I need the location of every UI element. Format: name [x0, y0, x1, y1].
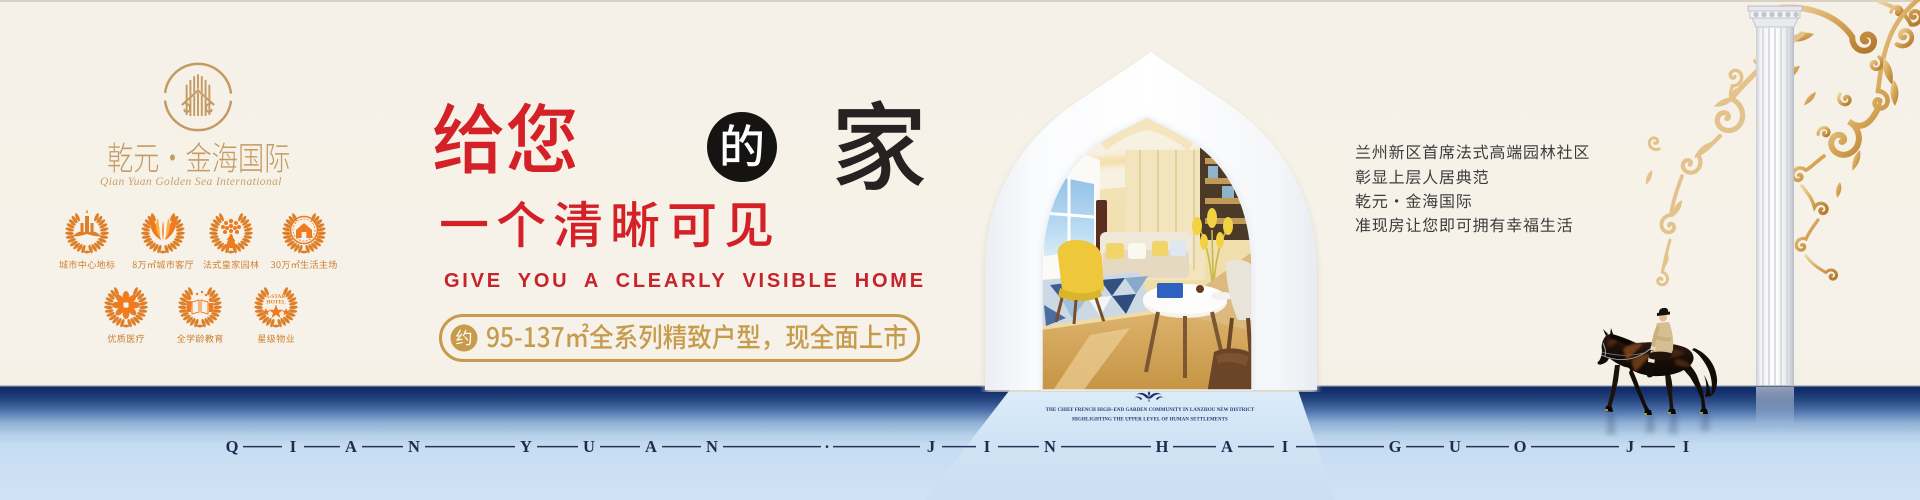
svg-text:G: G	[1389, 437, 1402, 456]
svg-text:I: I	[984, 437, 990, 456]
svg-text:Y: Y	[520, 437, 532, 456]
svg-text:Q: Q	[226, 437, 239, 456]
svg-text:THE CHIEF FRENCH HIGH–END GARD: THE CHIEF FRENCH HIGH–END GARDEN COMMUNI…	[1046, 408, 1255, 413]
svg-text:A: A	[1221, 437, 1233, 456]
svg-text:I: I	[1282, 437, 1288, 456]
svg-text:O: O	[1514, 437, 1527, 456]
svg-text:HOTEL: HOTEL	[266, 300, 286, 306]
svg-text:·: ·	[824, 437, 830, 456]
svg-text:N: N	[408, 437, 420, 456]
svg-text:A: A	[345, 437, 357, 456]
svg-text:U: U	[583, 437, 595, 456]
svg-text:I: I	[290, 437, 296, 456]
svg-text:U: U	[1449, 437, 1461, 456]
svg-text:HIGHLIGHTING THE UPPER LEVEL O: HIGHLIGHTING THE UPPER LEVEL OF HUMAN SE…	[1072, 418, 1228, 423]
svg-text:N: N	[1044, 437, 1056, 456]
svg-text:N: N	[706, 437, 718, 456]
svg-text:J: J	[927, 437, 935, 456]
svg-text:H: H	[1156, 437, 1169, 456]
svg-text:A: A	[645, 437, 657, 456]
